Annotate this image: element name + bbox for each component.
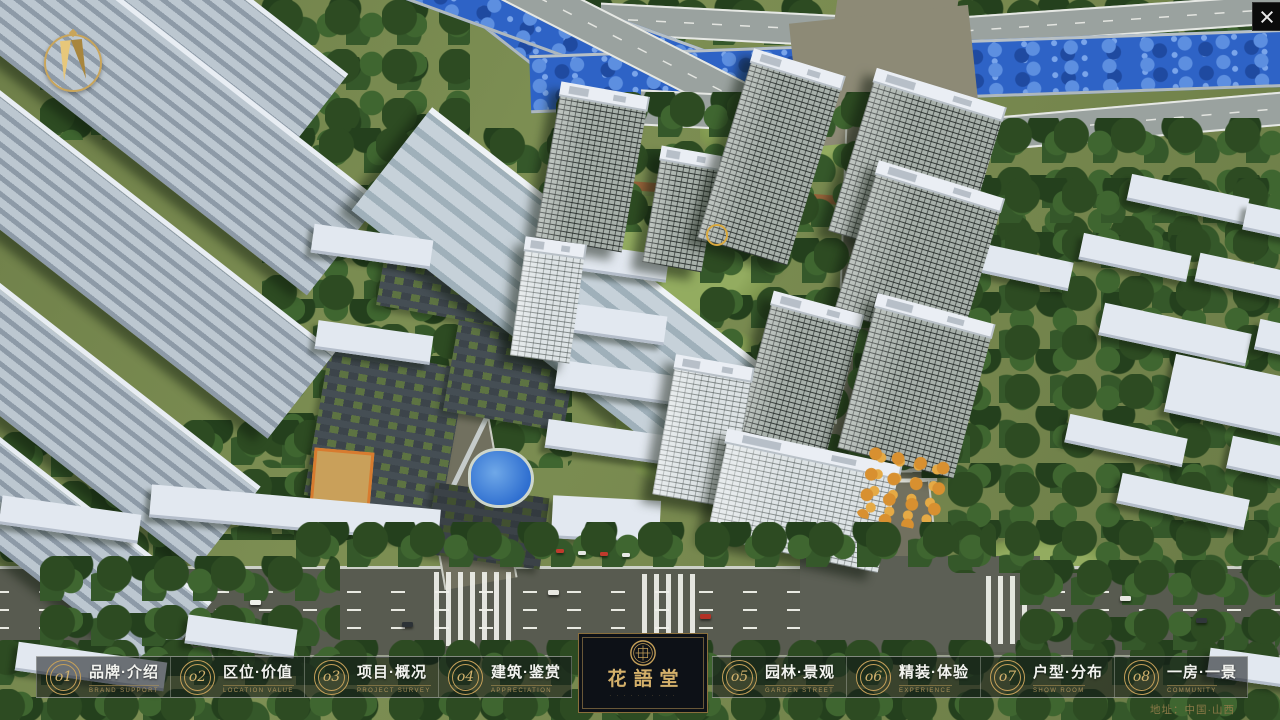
nav-item-brand-intro[interactable]: o1 品牌·介绍BRAND SUPPORT <box>36 657 170 697</box>
aerial-masterplan-canvas[interactable]: o1 品牌·介绍BRAND SUPPORT o2 区位·价值LOCATION V… <box>0 0 1280 720</box>
compass-needle <box>60 39 86 81</box>
nav-label-zh: 精装·体验 <box>899 661 969 682</box>
swimming-pool <box>468 448 534 508</box>
nav-label-zh: 户型·分布 <box>1033 661 1103 682</box>
car <box>1196 618 1207 623</box>
nav-item-architecture[interactable]: o4 建筑·鉴赏APPRECIATION <box>438 657 572 697</box>
car <box>622 553 630 557</box>
nav-label-zh: 一房·一景 <box>1167 661 1237 682</box>
nav-number-badge: o7 <box>990 660 1025 695</box>
nav-number-badge: o4 <box>448 660 483 695</box>
nav-item-project-overview[interactable]: o3 项目·概况PROJECT SURVEY <box>304 657 438 697</box>
nav-label-zh: 园林·景观 <box>765 661 835 682</box>
car <box>250 600 261 605</box>
project-name-subtext: · · · · · · · · · · <box>609 693 676 699</box>
car <box>1120 596 1131 601</box>
project-logo-panel[interactable]: 花語堂 · · · · · · · · · · <box>578 633 708 713</box>
nav-label-en: GARDEN STREET <box>765 685 834 694</box>
seal-emblem-icon <box>629 639 657 667</box>
nav-label-zh: 品牌·介绍 <box>89 661 159 682</box>
project-name: 花語堂 <box>600 670 685 689</box>
nav-label-zh: 项目·概况 <box>357 661 427 682</box>
street-trees <box>1020 560 1280 650</box>
nav-label-en: BRAND SUPPORT <box>89 685 159 694</box>
car <box>600 552 608 556</box>
car <box>578 551 586 555</box>
bottom-nav-right: o5 园林·景观GARDEN STREET o6 精装·体验EXPERIENCE… <box>712 656 1248 698</box>
nav-number-badge: o2 <box>180 660 215 695</box>
nav-item-location-value[interactable]: o2 区位·价值LOCATION VALUE <box>170 657 304 697</box>
nav-number-badge: o1 <box>46 660 81 695</box>
close-button[interactable] <box>1252 2 1280 31</box>
nav-number-badge: o3 <box>314 660 349 695</box>
car <box>548 590 559 595</box>
nav-label-en: EXPERIENCE <box>899 685 952 694</box>
nav-item-interior-experience[interactable]: o6 精装·体验EXPERIENCE <box>846 657 980 697</box>
car <box>556 549 564 553</box>
nav-item-landscape[interactable]: o5 园林·景观GARDEN STREET <box>712 657 846 697</box>
crosswalk <box>434 572 512 646</box>
nav-number-badge: o8 <box>1124 660 1159 695</box>
nav-label-en: SHOW ROOM <box>1033 685 1085 694</box>
compass-icon[interactable] <box>44 34 102 92</box>
nav-number-badge: o6 <box>856 660 891 695</box>
project-address: 地址：中国·山西 <box>1150 702 1235 717</box>
nav-label-zh: 区位·价值 <box>223 661 293 682</box>
car <box>700 614 711 619</box>
car <box>402 622 413 627</box>
nav-label-en: COMMUNITY <box>1167 685 1217 694</box>
nav-item-floorplan-distribution[interactable]: o7 户型·分布SHOW ROOM <box>980 657 1114 697</box>
playground-ring <box>706 224 728 246</box>
nav-label-en: LOCATION VALUE <box>223 685 294 694</box>
street-trees <box>296 522 996 570</box>
nav-number-badge: o5 <box>722 660 757 695</box>
nav-item-room-view[interactable]: o8 一房·一景COMMUNITY <box>1114 657 1248 697</box>
nav-label-en: PROJECT SURVEY <box>357 685 431 694</box>
nav-label-zh: 建筑·鉴赏 <box>491 661 561 682</box>
bottom-nav-left: o1 品牌·介绍BRAND SUPPORT o2 区位·价值LOCATION V… <box>36 656 572 698</box>
nav-label-en: APPRECIATION <box>491 685 552 694</box>
